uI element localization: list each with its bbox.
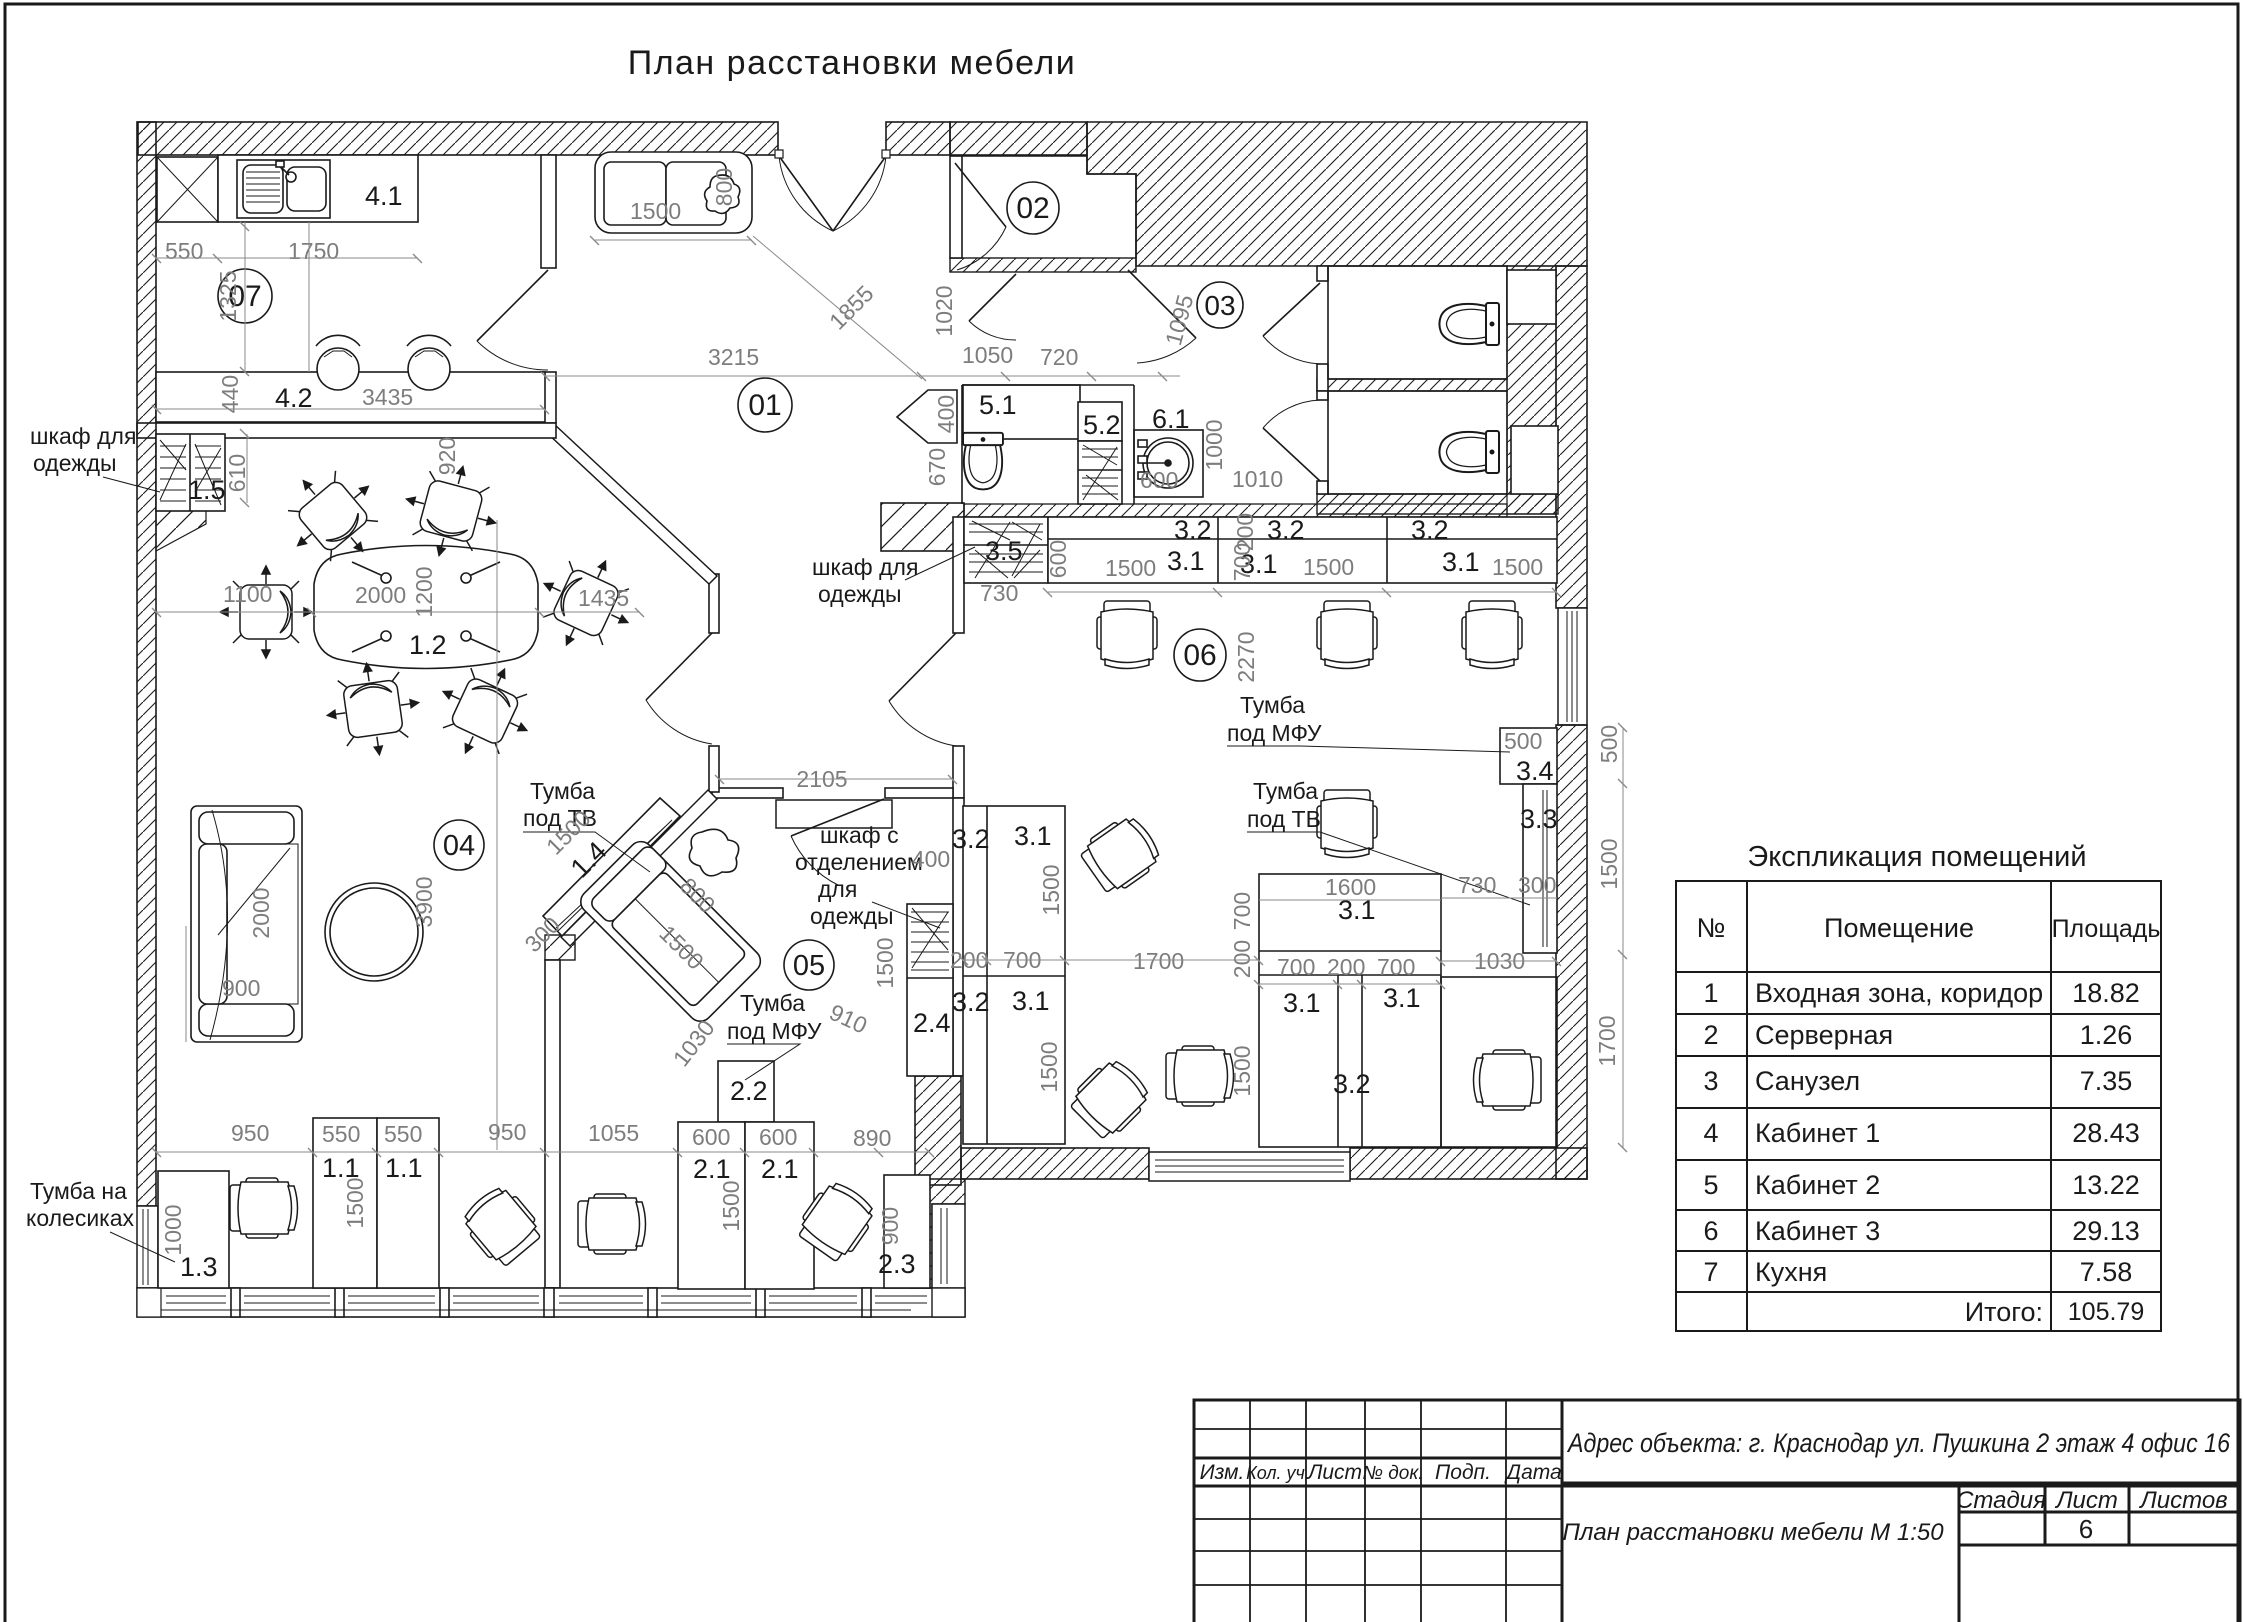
- svg-text:2.3: 2.3: [878, 1249, 916, 1279]
- svg-text:1050: 1050: [962, 342, 1013, 368]
- svg-text:3.5: 3.5: [985, 536, 1023, 566]
- svg-text:28.43: 28.43: [2072, 1118, 2140, 1148]
- svg-text:6: 6: [1703, 1216, 1718, 1246]
- svg-text:105.79: 105.79: [2068, 1298, 2144, 1326]
- svg-text:2.1: 2.1: [761, 1154, 799, 1184]
- svg-text:Площадь: Площадь: [2052, 915, 2161, 943]
- svg-text:400: 400: [933, 395, 959, 433]
- svg-text:3.2: 3.2: [1411, 515, 1449, 545]
- svg-text:под МФУ: под МФУ: [1227, 720, 1322, 746]
- svg-text:Адрес объекта: г. Краснодар ул: Адрес объекта: г. Краснодар ул. Пушкина …: [1566, 1428, 2231, 1458]
- svg-text:1020: 1020: [931, 285, 957, 336]
- svg-text:550: 550: [384, 1121, 422, 1147]
- svg-text:1.26: 1.26: [2080, 1020, 2133, 1050]
- svg-text:1500: 1500: [630, 198, 681, 224]
- svg-text:Кол. уч.: Кол. уч.: [1246, 1463, 1310, 1483]
- svg-text:3.1: 3.1: [1383, 983, 1421, 1013]
- svg-text:1700: 1700: [1594, 1015, 1620, 1066]
- svg-text:Тумба: Тумба: [740, 990, 805, 1016]
- svg-text:Тумба: Тумба: [1240, 692, 1305, 718]
- svg-text:5.1: 5.1: [979, 390, 1017, 420]
- svg-text:05: 05: [793, 950, 825, 982]
- svg-text:2.2: 2.2: [730, 1076, 768, 1106]
- svg-text:1435: 1435: [578, 585, 629, 611]
- svg-text:шкаф с: шкаф с: [820, 822, 899, 848]
- svg-text:730: 730: [1458, 872, 1496, 898]
- svg-text:2.1: 2.1: [693, 1154, 731, 1184]
- svg-text:1000: 1000: [160, 1204, 186, 1255]
- svg-text:3: 3: [1703, 1066, 1718, 1096]
- svg-text:440: 440: [217, 375, 243, 413]
- svg-text:670: 670: [924, 448, 950, 486]
- svg-text:Серверная: Серверная: [1755, 1020, 1893, 1050]
- svg-text:18.82: 18.82: [2072, 978, 2140, 1008]
- svg-text:3.4: 3.4: [1516, 756, 1554, 786]
- svg-text:Стадия: Стадия: [1956, 1487, 2046, 1514]
- svg-text:7: 7: [1703, 1257, 1718, 1287]
- svg-text:под ТВ: под ТВ: [1247, 806, 1321, 832]
- svg-text:отделением: отделением: [795, 849, 923, 875]
- svg-text:1100: 1100: [223, 581, 272, 607]
- svg-text:2270: 2270: [1233, 631, 1259, 682]
- svg-text:одежды: одежды: [818, 581, 902, 607]
- svg-text:План расстановки мебели: План расстановки мебели: [628, 44, 1077, 82]
- svg-text:3.3: 3.3: [1520, 804, 1558, 834]
- svg-text:920: 920: [434, 437, 460, 475]
- svg-text:1700: 1700: [1133, 948, 1184, 974]
- svg-text:300: 300: [1518, 872, 1556, 898]
- svg-text:3.1: 3.1: [1012, 986, 1050, 1016]
- svg-text:700: 700: [1377, 954, 1415, 980]
- svg-text:1500: 1500: [1492, 554, 1543, 580]
- svg-text:Изм.: Изм.: [1200, 1461, 1245, 1484]
- svg-text:Кабинет 1: Кабинет 1: [1755, 1118, 1880, 1148]
- svg-text:1750: 1750: [288, 238, 339, 264]
- svg-text:1.1: 1.1: [385, 1153, 423, 1183]
- svg-text:7.58: 7.58: [2080, 1257, 2133, 1287]
- svg-text:5.2: 5.2: [1083, 410, 1121, 440]
- svg-text:1055: 1055: [588, 1120, 639, 1146]
- svg-text:1: 1: [1703, 978, 1718, 1008]
- svg-text:2000: 2000: [355, 582, 406, 608]
- svg-text:1500: 1500: [718, 1180, 744, 1231]
- svg-text:2000: 2000: [248, 887, 274, 938]
- svg-text:Кабинет 2: Кабинет 2: [1755, 1170, 1880, 1200]
- svg-text:890: 890: [853, 1125, 891, 1151]
- svg-text:1500: 1500: [1596, 838, 1622, 889]
- svg-text:550: 550: [322, 1121, 360, 1147]
- svg-text:для: для: [818, 876, 857, 902]
- svg-text:700: 700: [1229, 543, 1255, 581]
- svg-text:1200: 1200: [411, 566, 437, 617]
- svg-text:3215: 3215: [708, 344, 759, 370]
- svg-text:2: 2: [1703, 1020, 1718, 1050]
- svg-text:1500: 1500: [872, 937, 898, 988]
- svg-text:500: 500: [1596, 725, 1622, 763]
- svg-text:3900: 3900: [411, 876, 437, 927]
- svg-text:3.1: 3.1: [1442, 547, 1480, 577]
- svg-text:200: 200: [1327, 954, 1365, 980]
- svg-text:1500: 1500: [1038, 864, 1064, 915]
- svg-text:2.4: 2.4: [913, 1008, 951, 1038]
- svg-text:1500: 1500: [1105, 555, 1156, 581]
- svg-text:одежды: одежды: [810, 903, 894, 929]
- svg-text:под МФУ: под МФУ: [727, 1018, 822, 1044]
- svg-text:610: 610: [224, 454, 250, 492]
- svg-text:1.2: 1.2: [409, 630, 447, 660]
- svg-text:3.2: 3.2: [1333, 1069, 1371, 1099]
- svg-text:29.13: 29.13: [2072, 1216, 2140, 1246]
- svg-text:900: 900: [222, 975, 260, 1001]
- svg-text:02: 02: [1016, 192, 1049, 225]
- svg-text:План расстановки мебели М 1:5: План расстановки мебели М 1:50: [1562, 1519, 1944, 1546]
- svg-text:600: 600: [759, 1124, 797, 1150]
- svg-text:Тумба: Тумба: [1253, 778, 1318, 804]
- svg-text:Лист: Лист: [1306, 1461, 1362, 1484]
- svg-text:Тумба: Тумба: [530, 778, 595, 804]
- svg-text:4: 4: [1703, 1118, 1718, 1148]
- svg-text:Входная зона, коридор: Входная зона, коридор: [1755, 978, 2043, 1008]
- svg-text:1000: 1000: [1201, 419, 1227, 470]
- svg-text:4.1: 4.1: [365, 181, 403, 211]
- svg-text:Листов: Листов: [2138, 1487, 2227, 1514]
- svg-text:600: 600: [692, 1124, 730, 1150]
- svg-text:Кабинет 3: Кабинет 3: [1755, 1216, 1880, 1246]
- svg-text:Итого:: Итого:: [1965, 1297, 2043, 1327]
- svg-text:400: 400: [912, 846, 950, 872]
- svg-text:шкаф для: шкаф для: [812, 554, 918, 580]
- svg-text:3.2: 3.2: [952, 824, 990, 854]
- svg-text:одежды: одежды: [33, 450, 117, 476]
- svg-text:600: 600: [1045, 540, 1071, 578]
- svg-text:04: 04: [443, 830, 475, 862]
- svg-text:700: 700: [1229, 892, 1255, 930]
- svg-text:3.1: 3.1: [1167, 546, 1205, 576]
- svg-text:1010: 1010: [1232, 466, 1283, 492]
- svg-text:1500: 1500: [1303, 554, 1354, 580]
- svg-text:550: 550: [165, 238, 203, 264]
- svg-text:900: 900: [877, 1207, 903, 1245]
- svg-text:200: 200: [1229, 940, 1255, 978]
- svg-text:шкаф для: шкаф для: [30, 423, 136, 449]
- svg-text:500: 500: [1504, 728, 1542, 754]
- svg-text:3.1: 3.1: [1014, 821, 1052, 851]
- svg-text:01: 01: [748, 389, 781, 422]
- svg-text:Экспликация помещений: Экспликация помещений: [1747, 841, 2086, 873]
- svg-text:№: №: [1697, 913, 1726, 943]
- svg-text:Дата: Дата: [1504, 1461, 1561, 1484]
- svg-text:13.22: 13.22: [2072, 1170, 2140, 1200]
- svg-text:Подп.: Подп.: [1435, 1461, 1491, 1484]
- svg-text:№ док.: № док.: [1362, 1463, 1423, 1484]
- svg-text:730: 730: [980, 580, 1018, 606]
- svg-text:3.2: 3.2: [1267, 515, 1305, 545]
- svg-text:720: 720: [1040, 344, 1078, 370]
- svg-text:800: 800: [711, 168, 737, 206]
- svg-text:Санузел: Санузел: [1755, 1066, 1860, 1096]
- svg-text:1325: 1325: [215, 270, 241, 321]
- svg-text:7.35: 7.35: [2080, 1066, 2133, 1096]
- svg-text:06: 06: [1183, 639, 1216, 672]
- svg-text:колесиках: колесиках: [26, 1205, 135, 1231]
- svg-text:Лист: Лист: [2054, 1487, 2118, 1514]
- svg-text:3.1: 3.1: [1283, 988, 1321, 1018]
- svg-text:1.5: 1.5: [188, 475, 226, 505]
- svg-text:6: 6: [2079, 1514, 2093, 1544]
- svg-text:1500: 1500: [342, 1177, 368, 1228]
- svg-text:3435: 3435: [362, 384, 413, 410]
- svg-text:Кухня: Кухня: [1755, 1257, 1827, 1287]
- svg-text:950: 950: [488, 1119, 526, 1145]
- svg-text:5: 5: [1703, 1170, 1718, 1200]
- svg-text:1500: 1500: [1036, 1041, 1062, 1092]
- svg-text:700: 700: [1277, 954, 1315, 980]
- svg-text:Тумба на: Тумба на: [30, 1178, 127, 1204]
- svg-text:1600: 1600: [1325, 874, 1376, 900]
- svg-text:3.2: 3.2: [952, 987, 990, 1017]
- svg-text:3.2: 3.2: [1174, 515, 1212, 545]
- svg-text:1500: 1500: [1229, 1045, 1255, 1096]
- svg-text:6.1: 6.1: [1152, 404, 1190, 434]
- svg-text:03: 03: [1204, 290, 1235, 321]
- svg-text:950: 950: [231, 1120, 269, 1146]
- svg-text:Помещение: Помещение: [1824, 913, 1974, 943]
- svg-text:600: 600: [1140, 467, 1178, 493]
